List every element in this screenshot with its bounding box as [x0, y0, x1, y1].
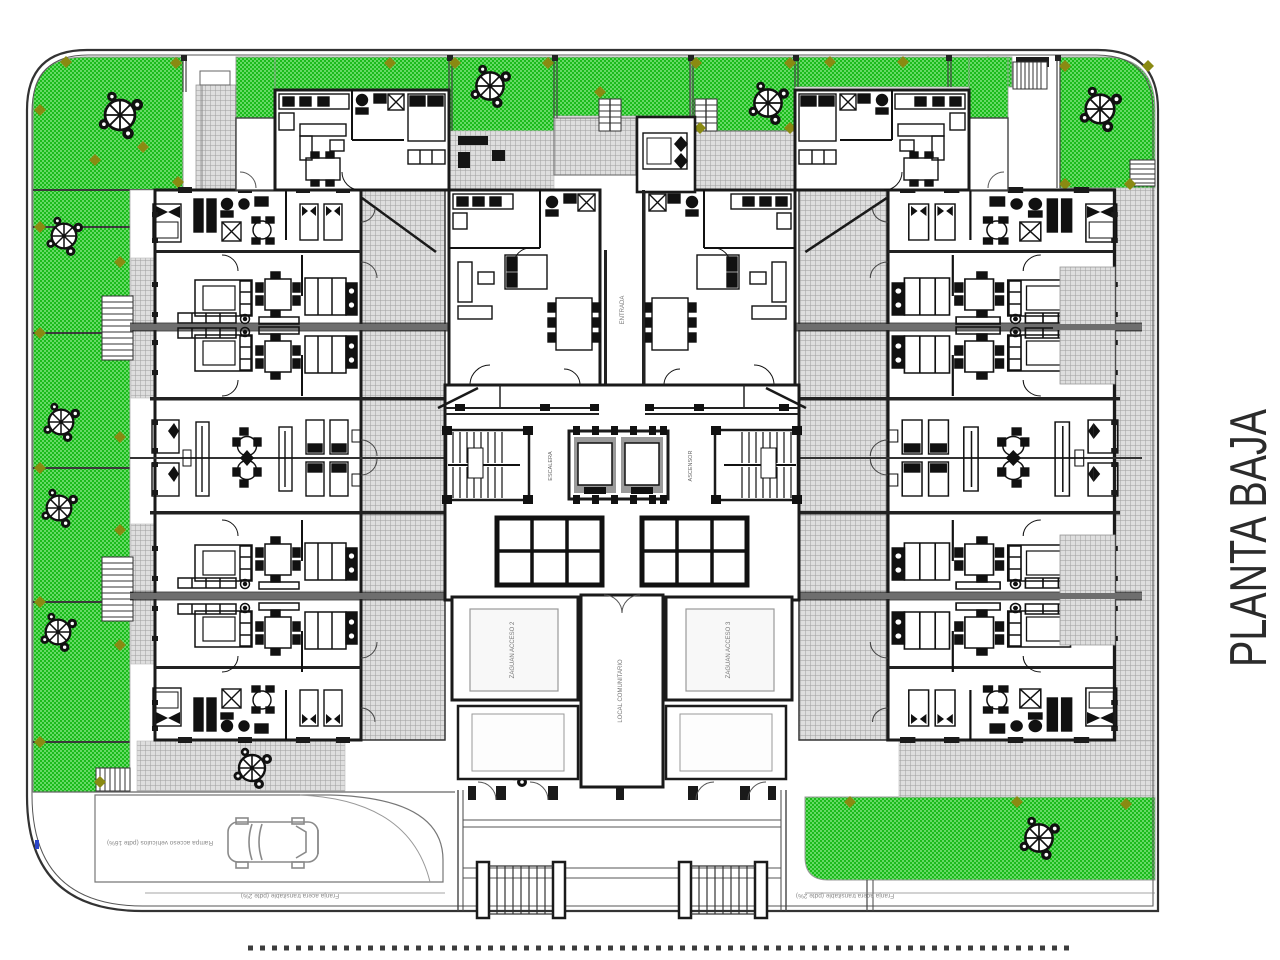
svg-text:LOCAL COMUNITARIO: LOCAL COMUNITARIO [618, 659, 624, 723]
svg-text:Rampa acceso vehículos (pdte 1: Rampa acceso vehículos (pdte 16%) [107, 839, 213, 846]
svg-text:ESCALERA: ESCALERA [548, 451, 554, 481]
svg-text:ASCENSOR: ASCENSOR [688, 451, 694, 482]
svg-text:Franja acera transitable (pdte: Franja acera transitable (pdte 2%) [796, 892, 894, 899]
svg-text:ZAGUAN ACCESO 2: ZAGUAN ACCESO 2 [510, 621, 516, 678]
svg-text:Franja acera transitable (pdte: Franja acera transitable (pdte 2%) [241, 892, 339, 899]
svg-text:ENTRADA: ENTRADA [620, 296, 626, 325]
svg-text:ZAGUAN ACCESO 3: ZAGUAN ACCESO 3 [726, 621, 732, 678]
svg-text:PLANTA BAJA: PLANTA BAJA [1220, 409, 1278, 667]
